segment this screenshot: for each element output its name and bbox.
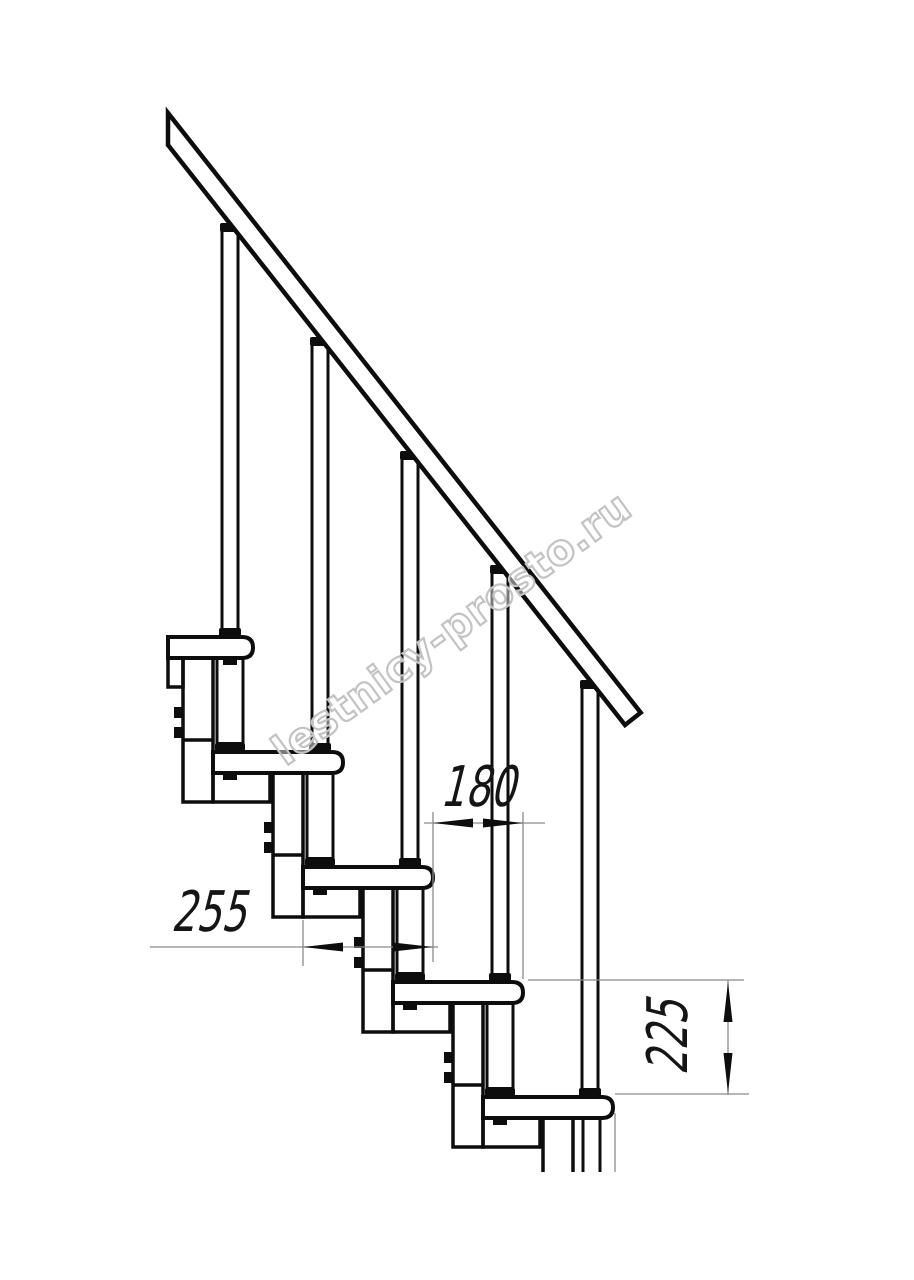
dimension-tread-depth: 255: [150, 879, 438, 966]
staircase-elevation-drawing: 180 255 225 lestnicy-prosto.ru: [0, 0, 914, 1280]
baluster-1: [222, 228, 238, 637]
dimension-step-run: 180: [424, 754, 545, 979]
technical-drawing-page: 180 255 225 lestnicy-prosto.ru: [0, 0, 914, 1280]
steps: [168, 637, 613, 1118]
dim-value-step-run: 180: [436, 754, 527, 820]
dim-value-tread-depth: 255: [167, 879, 258, 945]
step-5: [483, 1097, 613, 1118]
step-3: [303, 867, 433, 888]
step-4: [393, 982, 523, 1003]
dimension-riser-height: 225: [528, 980, 749, 1095]
tube-feet-and-nuts: [215, 658, 515, 1125]
baluster-5: [582, 685, 598, 1097]
dim-value-riser-height: 225: [635, 988, 701, 1079]
step-1: [168, 637, 253, 658]
cut-bracket: [168, 658, 183, 687]
